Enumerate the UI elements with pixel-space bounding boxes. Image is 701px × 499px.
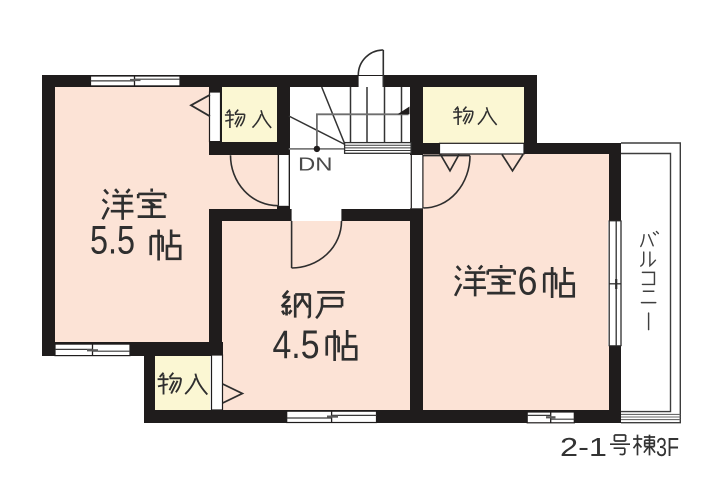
svg-text:5.5: 5.5 [90,219,135,263]
svg-text:2-1: 2-1 [560,432,607,462]
svg-text:4.5: 4.5 [273,323,320,367]
svg-text:DN: DN [298,155,333,175]
svg-text:3F: 3F [656,432,679,462]
svg-text:6: 6 [518,260,538,304]
